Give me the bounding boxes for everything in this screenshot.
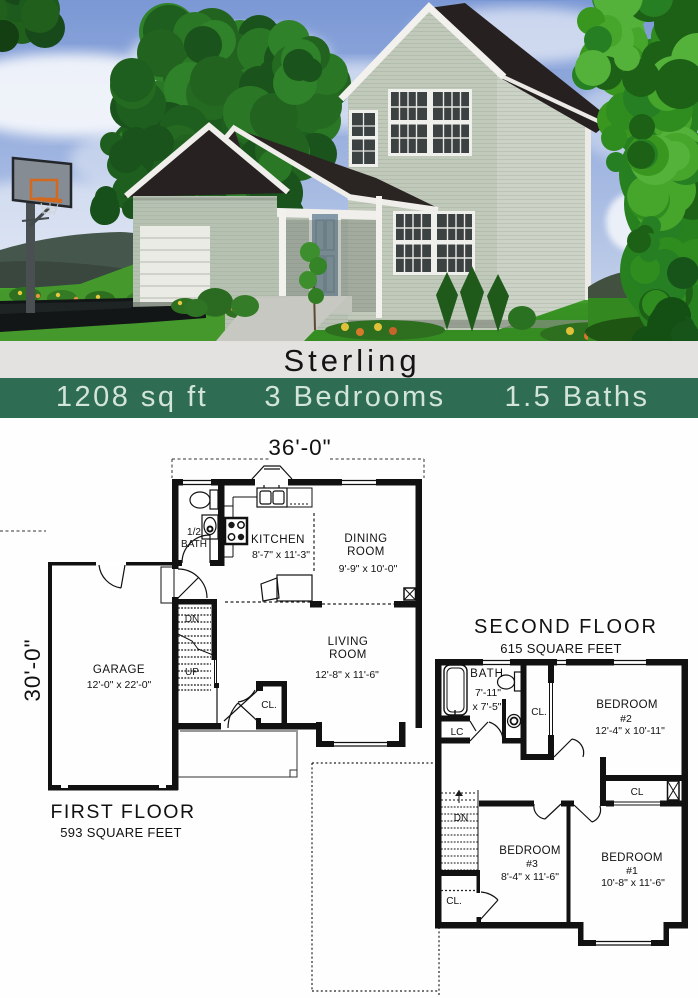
svg-text:BEDROOM: BEDROOM	[499, 845, 561, 857]
svg-text:36'-0": 36'-0"	[268, 435, 331, 460]
svg-text:1/2: 1/2	[187, 527, 201, 538]
svg-text:SECOND FLOOR: SECOND FLOOR	[474, 616, 658, 638]
svg-text:12'-0" x 22'-0": 12'-0" x 22'-0"	[87, 679, 152, 691]
svg-text:7'-11": 7'-11"	[475, 687, 501, 699]
svg-text:CL.: CL.	[531, 707, 547, 718]
svg-text:9'-9" x 10'-0": 9'-9" x 10'-0"	[339, 563, 398, 575]
svg-text:30'-0": 30'-0"	[20, 638, 45, 701]
svg-text:8'-7" x 11'-3": 8'-7" x 11'-3"	[252, 549, 310, 561]
svg-text:LC: LC	[451, 727, 464, 738]
svg-text:BEDROOM: BEDROOM	[601, 852, 663, 864]
svg-text:ROOM: ROOM	[329, 649, 367, 661]
svg-text:UP: UP	[185, 667, 199, 678]
svg-text:x 7'-5": x 7'-5"	[472, 701, 501, 713]
svg-text:LIVING: LIVING	[328, 636, 369, 648]
svg-text:BATH: BATH	[181, 539, 207, 550]
svg-text:593 SQUARE FEET: 593 SQUARE FEET	[60, 825, 182, 840]
svg-text:CL: CL	[631, 787, 644, 798]
svg-text:FIRST FLOOR: FIRST FLOOR	[50, 801, 195, 823]
svg-text:8'-4" x 11'-6": 8'-4" x 11'-6"	[501, 871, 559, 883]
svg-text:DINING: DINING	[344, 533, 387, 545]
svg-text:#1: #1	[626, 865, 638, 877]
svg-text:ROOM: ROOM	[347, 546, 385, 558]
svg-text:12'-4" x 10'-11": 12'-4" x 10'-11"	[595, 725, 665, 737]
svg-text:#3: #3	[526, 858, 538, 870]
svg-text:GARAGE: GARAGE	[93, 664, 145, 676]
svg-text:KITCHEN: KITCHEN	[251, 534, 305, 546]
svg-text:BEDROOM: BEDROOM	[596, 699, 658, 711]
svg-text:CL.: CL.	[446, 896, 462, 907]
svg-text:10'-8" x 11'-6": 10'-8" x 11'-6"	[601, 877, 665, 889]
svg-text:12'-8" x 11'-6": 12'-8" x 11'-6"	[315, 669, 379, 681]
svg-text:#2: #2	[620, 713, 632, 725]
svg-text:DN: DN	[185, 614, 199, 625]
svg-text:DN: DN	[454, 813, 468, 824]
svg-text:615 SQUARE FEET: 615 SQUARE FEET	[500, 641, 622, 656]
svg-text:CL.: CL.	[261, 700, 277, 711]
